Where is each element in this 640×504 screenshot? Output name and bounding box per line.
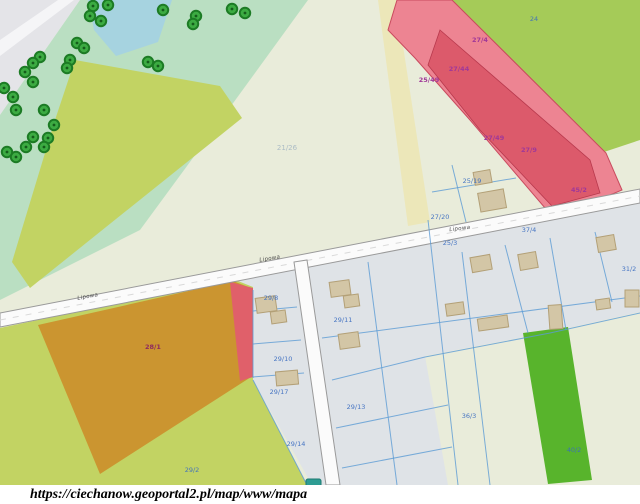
map-canvas[interactable]: 21/26 24 25/19 27/20 37/4 25/3 29/8 29/1… [0, 0, 640, 504]
building-footprint [275, 370, 298, 386]
building-footprint [596, 235, 616, 253]
parcel-number: 27/20 [431, 213, 450, 221]
parcel-number: 29/17 [270, 388, 289, 396]
parcel-number: 45/2 [571, 186, 587, 194]
building-footprint [343, 294, 360, 308]
geoportal-map-window: 21/26 24 25/19 27/20 37/4 25/3 29/8 29/1… [0, 0, 640, 504]
building-footprint [625, 290, 639, 307]
parcel-number: 40/2 [567, 446, 582, 454]
building-footprint [445, 302, 464, 316]
parcel-number: 24 [530, 15, 538, 23]
building-footprint [338, 332, 360, 350]
parcel-number: 29/14 [287, 440, 306, 448]
parcel-number: 21/26 [277, 144, 298, 152]
parcel-number: 29/11 [334, 316, 353, 324]
building-footprint [478, 189, 507, 212]
parcel-number: 36/3 [462, 412, 477, 420]
parcel-number: 31/2 [622, 265, 637, 273]
parcel-number: 25/49 [419, 76, 440, 84]
parcel-number: 25/19 [463, 177, 482, 185]
building-footprint [548, 305, 563, 330]
parcel-number: 29/10 [274, 355, 293, 363]
parcel-number: 27/4 [472, 36, 488, 44]
parcel-number: 37/4 [522, 226, 537, 234]
parcel-number: 27/44 [449, 65, 470, 73]
building-footprint [518, 252, 539, 271]
building-footprint [270, 310, 287, 324]
parcel-number: 28/1 [145, 343, 161, 351]
building-footprint [329, 280, 351, 298]
parcel-number: 29/8 [264, 294, 279, 302]
building-footprint [595, 298, 610, 310]
url-bar: https://ciechanow.geoportal2.pl/map/www/… [0, 485, 640, 504]
parcel-number: 29/13 [347, 403, 366, 411]
parcel-number: 27/49 [484, 134, 505, 142]
parcel-number: 29/2 [185, 466, 200, 474]
building-footprint [470, 254, 492, 272]
parcel-number: 27/9 [521, 146, 537, 154]
parcel-number: 25/3 [443, 239, 458, 247]
url-text: https://ciechanow.geoportal2.pl/map/www/… [30, 485, 307, 504]
